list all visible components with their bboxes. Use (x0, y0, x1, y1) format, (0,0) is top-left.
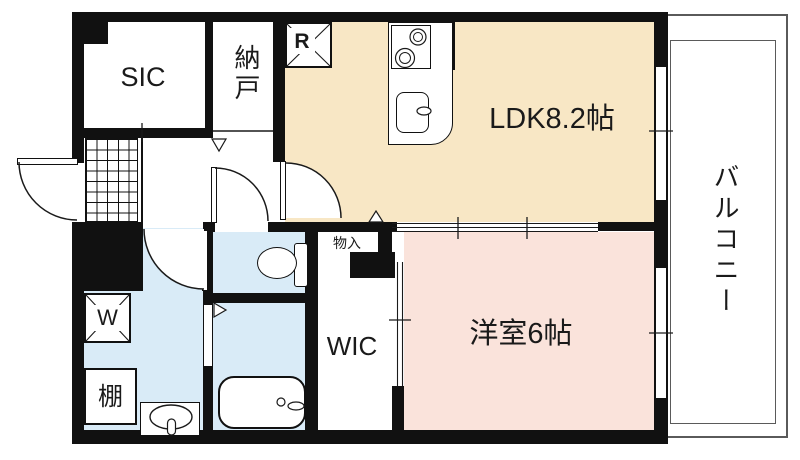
refrigerator-label: R (289, 28, 315, 54)
entrance-edge-line (141, 138, 143, 222)
entrance-door-arc (19, 162, 77, 220)
wall (273, 22, 285, 162)
window-bedroom (654, 268, 668, 398)
nando-door-mark (212, 139, 226, 151)
sink-icon (396, 92, 429, 133)
wall (84, 222, 143, 291)
washroom-door-leaf (202, 230, 208, 291)
ldk-door-leaf (280, 161, 286, 220)
wall (203, 293, 315, 303)
bedroom-label: 洋室6帖 (440, 317, 602, 351)
toilet-door-leaf (211, 167, 217, 223)
balcony-label: バルコニー (706, 140, 744, 340)
ldk-label: LDK8.2帖 (468, 102, 636, 136)
wall (654, 398, 668, 444)
wall (72, 12, 84, 163)
wall (598, 222, 656, 231)
floor-plan: SIC 納戸 R LDK8.2帖 洋室6帖 WIC 物入 W 棚 バルコニー (0, 0, 800, 460)
wall (84, 128, 213, 138)
washbasin-counter (140, 402, 200, 436)
entrance-tile (85, 138, 138, 222)
window-ldk (654, 67, 668, 200)
wic-label: WIC (320, 330, 384, 362)
washer-label: W (93, 305, 122, 331)
wall (205, 22, 213, 138)
sic-label: SIC (110, 62, 176, 92)
wall (392, 386, 404, 434)
nando-label: 納戸 (229, 38, 263, 110)
wall (72, 12, 668, 22)
wall (654, 12, 668, 67)
bathtub-icon (218, 376, 306, 429)
shelf-label: 棚 (96, 383, 125, 411)
toilet-door-arc (215, 168, 268, 221)
wall (72, 222, 84, 444)
toilet-bowl-icon (257, 247, 297, 279)
stove-icon (391, 25, 431, 69)
bathroom-door-slot (203, 304, 213, 367)
entrance-door-leaf (17, 158, 78, 165)
monoire-label: 物入 (322, 233, 372, 252)
wall (654, 200, 668, 268)
wall (378, 222, 392, 262)
